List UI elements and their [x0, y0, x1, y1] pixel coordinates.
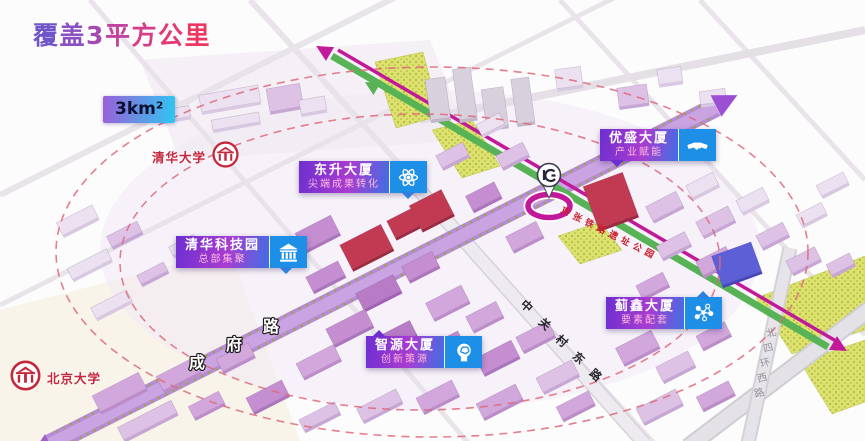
building-block	[816, 172, 850, 199]
title-char: 公	[158, 21, 185, 50]
subway-icon	[538, 164, 561, 187]
building-block	[56, 205, 99, 238]
university-name: 北京大学	[47, 368, 101, 387]
building-name: 清华科技园	[185, 238, 260, 254]
label-peking-university: 北京大学	[10, 360, 101, 395]
network-icon	[685, 297, 722, 329]
callout-text: 东升大厦 尖端成果转化	[299, 161, 390, 193]
callout-pointer	[610, 160, 624, 174]
university-gate-icon	[212, 141, 239, 172]
bank-icon	[270, 236, 307, 268]
title-char: 覆	[33, 21, 60, 50]
road-label-char: 府	[226, 335, 242, 354]
building-block	[636, 389, 684, 426]
building-tagline: 要素配套	[615, 315, 675, 327]
building-name: 东升大厦	[308, 163, 380, 179]
university-gate-icon	[10, 360, 41, 395]
city-map: 成府路中关村东路北四环西路京张铁路遗址公园	[0, 0, 865, 441]
building-block	[657, 66, 683, 87]
building-block	[555, 66, 584, 91]
title-char: 3	[86, 21, 105, 50]
callout-dongsheng-tower: 东升大厦 尖端成果转化	[299, 161, 427, 193]
callout-text: 优盛大厦 产业赋能	[600, 129, 679, 161]
callout-jixin-tower: 蓟鑫大厦 要素配套	[606, 297, 722, 329]
callout-pointer	[372, 323, 386, 337]
building-name: 蓟鑫大厦	[615, 299, 675, 315]
callout-text: 清华科技园 总部集聚	[176, 236, 270, 268]
title-char: 方	[131, 21, 158, 50]
callout-pointer	[279, 267, 293, 281]
title-char: 盖	[60, 21, 87, 50]
university-name: 清华大学	[152, 147, 206, 166]
building-tagline: 尖端成果转化	[308, 179, 380, 191]
building-block	[617, 84, 650, 110]
building-block	[796, 202, 828, 228]
building-name: 优盛大厦	[609, 131, 669, 147]
title-char: 平	[105, 21, 132, 50]
callout-tsinghua-science-park: 清华科技园 总部集聚	[176, 236, 307, 268]
road-label-char: 成	[189, 353, 205, 372]
building-tagline: 产业赋能	[609, 147, 669, 159]
page-title: 覆盖3平方公里	[33, 16, 211, 52]
slide-map: 成府路中关村东路北四环西路京张铁路遗址公园 覆盖3平方公里 3km² 清华大学 …	[0, 0, 865, 441]
brain-icon	[445, 336, 482, 368]
atom-icon	[390, 161, 427, 193]
road-label-char: 路	[263, 317, 280, 336]
callout-zhiyuan-tower: 智源大厦 创新策源	[366, 336, 482, 368]
callout-text: 智源大厦 创新策源	[366, 336, 445, 368]
callout-text: 蓟鑫大厦 要素配套	[606, 297, 685, 329]
handshake-icon	[679, 129, 716, 161]
title-char: 里	[184, 21, 211, 50]
building-tagline: 创新策源	[375, 354, 435, 366]
label-tsinghua-university: 清华大学	[152, 141, 239, 172]
building-tagline: 总部集聚	[185, 254, 260, 266]
area-badge: 3km²	[103, 96, 175, 123]
callout-pointer	[401, 192, 415, 206]
callout-pointer	[696, 284, 710, 298]
building-name: 智源大厦	[375, 338, 435, 354]
callout-yousheng-tower: 优盛大厦 产业赋能	[600, 129, 716, 161]
